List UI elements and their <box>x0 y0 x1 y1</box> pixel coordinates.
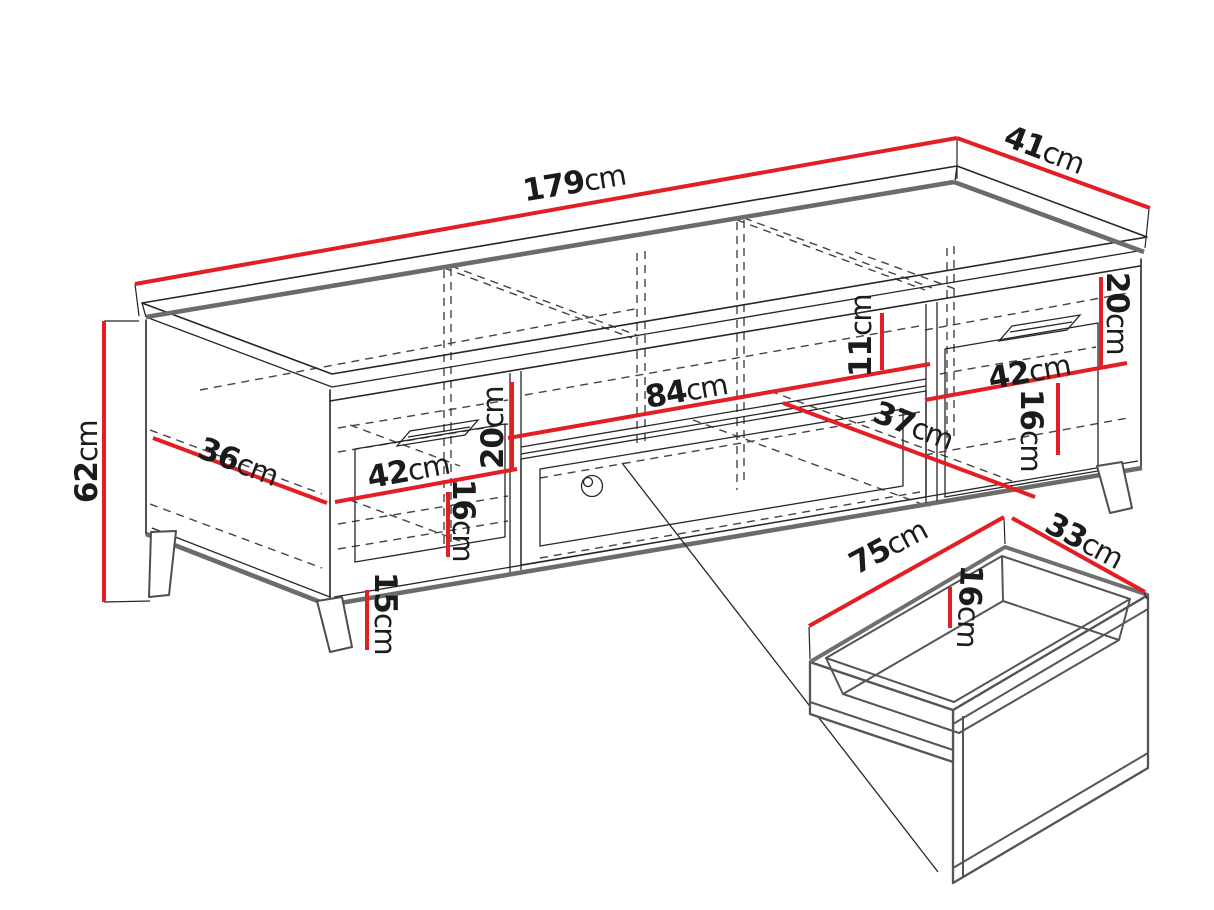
top-right-edge <box>954 182 1144 252</box>
label-left-drawer-height: 16cm <box>445 479 481 561</box>
label-middle-niche-height: 11cm <box>843 295 879 377</box>
label-right-drawer-height: 16cm <box>1013 389 1049 471</box>
bottom-board-left-edge <box>152 528 330 597</box>
label-side-inner-depth: 36cm <box>193 430 283 493</box>
right-divider <box>926 302 937 503</box>
dim-line-width-total <box>135 138 957 284</box>
top-slab-left-bottom-edge <box>146 317 332 387</box>
front-left-leg <box>317 597 352 652</box>
label-left-drawer-width: 42cm <box>364 446 452 496</box>
hidden-edge-dashed-lines <box>150 218 1128 568</box>
label-drawer-box-width: 75cm <box>843 512 933 582</box>
label-left-opening-height: 20cm <box>475 387 511 469</box>
label-height-total: 62cm <box>69 421 105 503</box>
diagram-canvas: 179cm 41cm 62cm 36cm 42cm 20cm 16cm 15cm… <box>0 0 1214 910</box>
label-middle-niche-width: 84cm <box>642 366 729 416</box>
label-leg-height: 15cm <box>367 572 403 654</box>
dimension-labels: 179cm 41cm 62cm 36cm 42cm 20cm 16cm 15cm… <box>69 118 1135 654</box>
label-right-opening-height: 20cm <box>1099 272 1135 354</box>
label-drawer-box-height: 16cm <box>949 564 989 648</box>
back-left-leg <box>149 531 176 597</box>
left-drawer-handle <box>397 420 478 446</box>
label-depth-total: 41cm <box>999 118 1089 181</box>
furniture-dimension-drawing: 179cm 41cm 62cm 36cm 42cm 20cm 16cm 15cm… <box>0 0 1214 910</box>
